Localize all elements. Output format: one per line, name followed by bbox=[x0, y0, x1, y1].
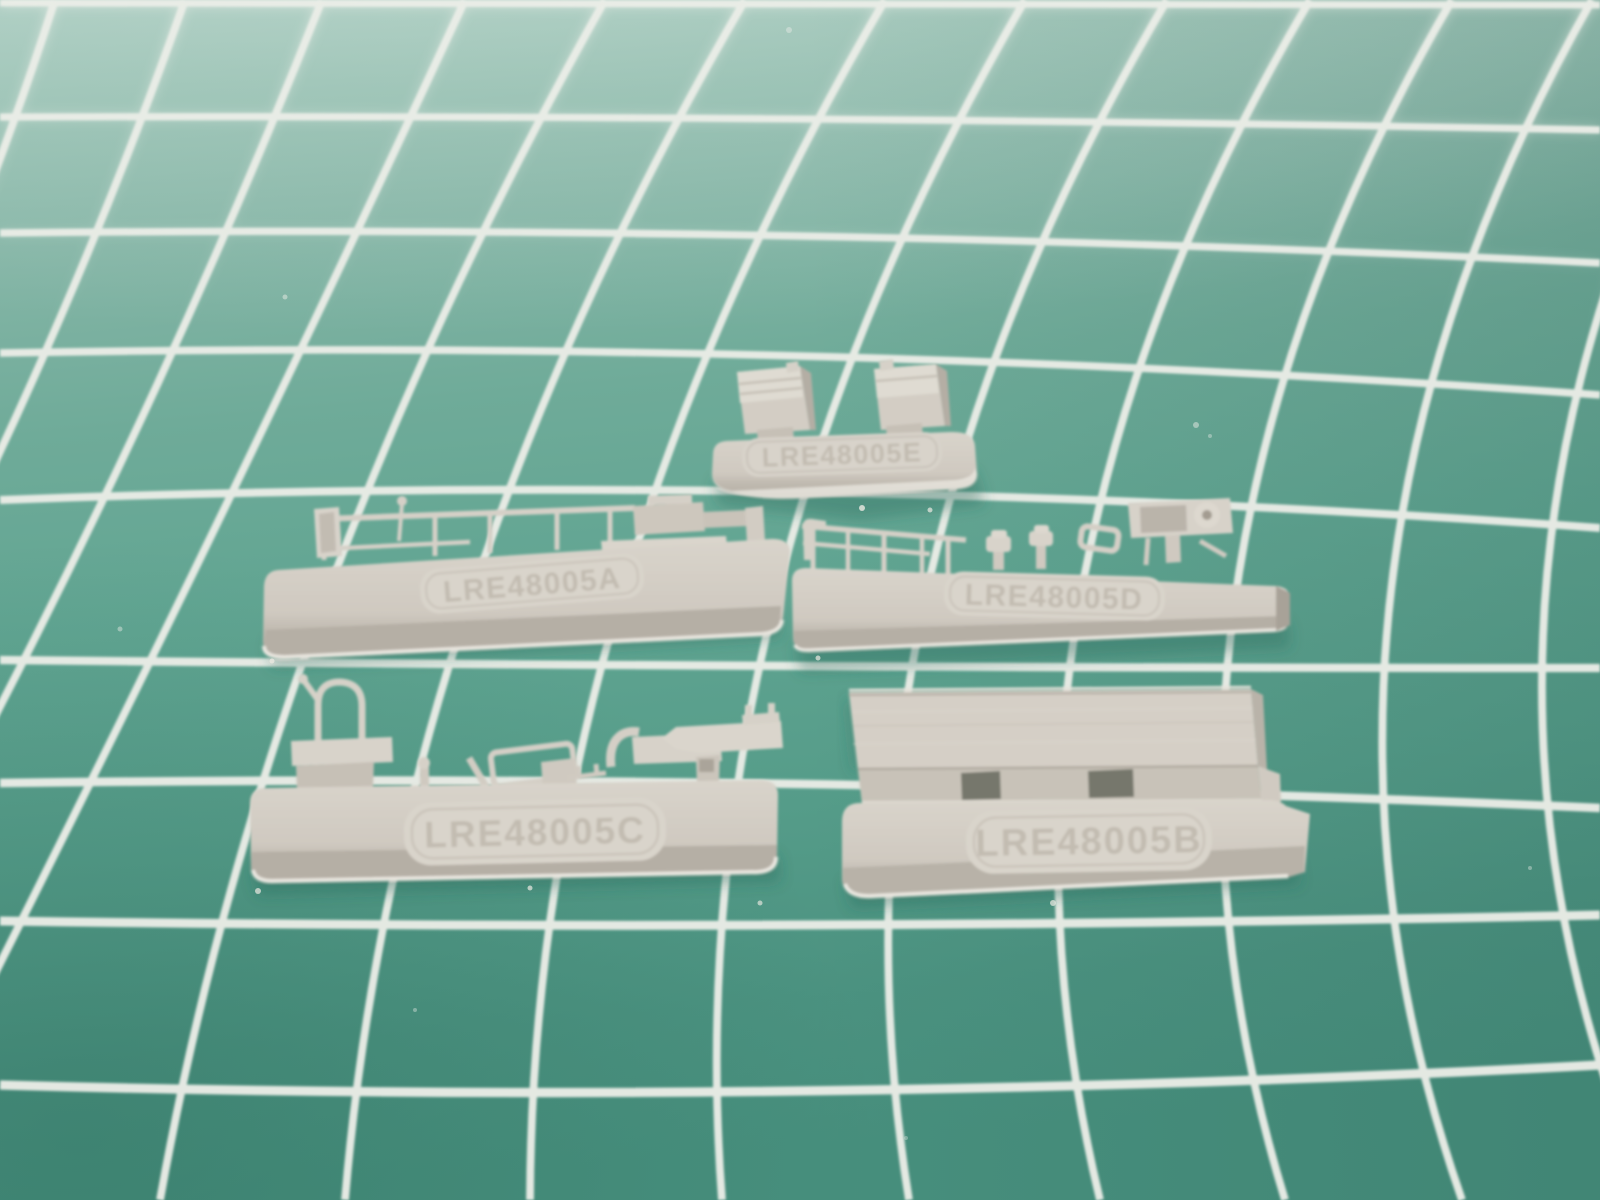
svg-text:LRE48005C: LRE48005C bbox=[424, 809, 646, 855]
svg-text:LRE48005D: LRE48005D bbox=[964, 579, 1143, 617]
svg-text:LRE48005B: LRE48005B bbox=[975, 819, 1203, 865]
svg-text:LRE48005E: LRE48005E bbox=[761, 437, 923, 473]
